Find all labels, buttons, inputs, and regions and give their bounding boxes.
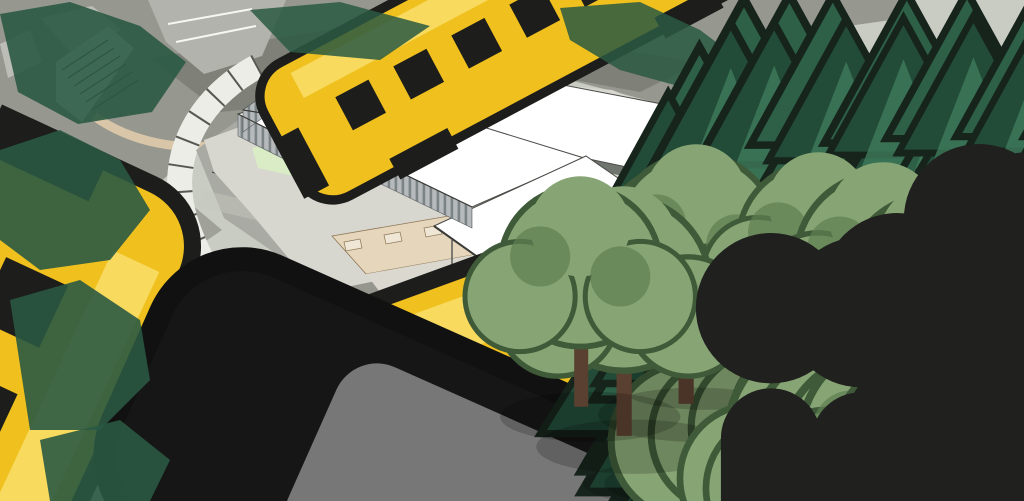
architectural-rendering: Aerial architectural rendering of a scho… [0,0,1024,501]
rendering-canvas: Aerial architectural rendering of a scho… [0,0,1024,501]
